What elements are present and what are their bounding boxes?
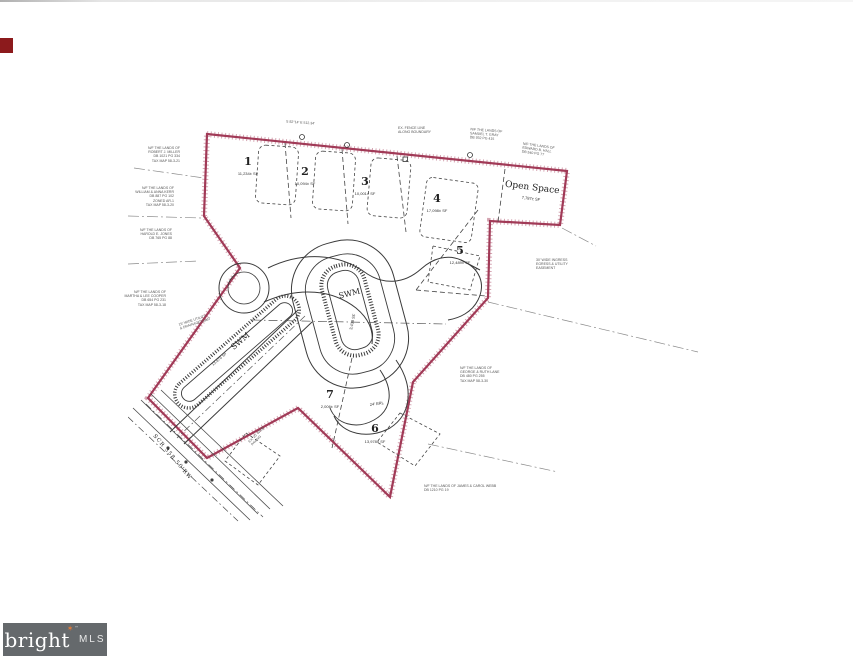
lot-3-number: 3 — [361, 175, 369, 188]
annotation-note: 30' WIDE INGRESS EGRESS & UTILITY EASEME… — [536, 258, 594, 271]
lot-1-area: 11,234± SF — [238, 171, 259, 176]
lot-6-area: 13,978± SF — [365, 439, 386, 444]
annotation-note: EX. FENCE LINE ALONG BOUNDARY — [398, 126, 470, 134]
star-icon: ✶ — [67, 625, 74, 633]
lot-7-number: 7 — [326, 388, 334, 401]
lot-2-area: 10,094± SF — [295, 181, 316, 186]
swm-basin-center — [317, 260, 383, 360]
scan-top-edge-line — [0, 0, 853, 2]
swm-basin-strip — [169, 290, 305, 413]
open-space-area: 7,787± SF — [522, 195, 541, 202]
lot-5-area: 12,489± SF — [450, 260, 471, 265]
loop-road — [281, 229, 420, 399]
lot-1-number: 1 — [244, 155, 252, 168]
lot-3-area: 10,001± SF — [355, 191, 376, 196]
swm-strip-label: SWM — [229, 331, 251, 352]
lot-divider-lines — [285, 143, 505, 448]
bright-logo-text: bright ✶ ™ — [4, 630, 69, 650]
annotation-note: N/F THE LANDS OF MARTHA & LEE COOPER DB … — [102, 290, 166, 307]
annotation-note: N/F THE LANDS OF ROBERT J. MILLER DB 102… — [118, 146, 180, 163]
lot-4-area: 17,098± SF — [427, 208, 448, 213]
trademark-symbol: ™ — [74, 626, 79, 630]
plat-map-drawing: 1 11,234± SF 2 10,094± SF 3 10,001± SF 4… — [128, 118, 728, 528]
lot-6-number: 6 — [371, 422, 379, 435]
lot-5-number: 5 — [456, 244, 464, 257]
red-scan-artifact — [0, 38, 13, 53]
bright-mls-watermark: bright ✶ ™ MLS — [3, 623, 107, 656]
annotation-note: N/F THE LANDS OF JAMES & CAROL WEBB DB 1… — [424, 484, 544, 492]
lot-labels: 1 11,234± SF 2 10,094± SF 3 10,001± SF 4… — [238, 155, 471, 444]
bright-wordmark: bright — [4, 628, 69, 652]
swm-center-label: SWM — [338, 287, 361, 301]
lot-2-number: 2 — [301, 165, 309, 178]
annotation-note: N/F THE LANDS OF HAROLD E. JONES DB 765 … — [106, 228, 172, 241]
lot-4-number: 4 — [433, 192, 441, 205]
swm-center-area: 3,438 SF — [348, 313, 356, 330]
lot-7-area: 2,006± SF — [321, 404, 340, 409]
brl-label: 24' BRL — [369, 400, 384, 407]
open-space-label: Open Space — [504, 180, 560, 197]
annotation-note: N/F THE LANDS OF WILLIAM & ANNA KERR DB … — [108, 186, 174, 207]
street-edges — [264, 257, 481, 344]
mls-logo-text: MLS — [79, 634, 106, 645]
annotation-note: N/F THE LANDS OF GEORGE & RUTH LANE DB 4… — [460, 366, 522, 383]
open-space-labels: Open Space 7,787± SF — [503, 180, 560, 205]
